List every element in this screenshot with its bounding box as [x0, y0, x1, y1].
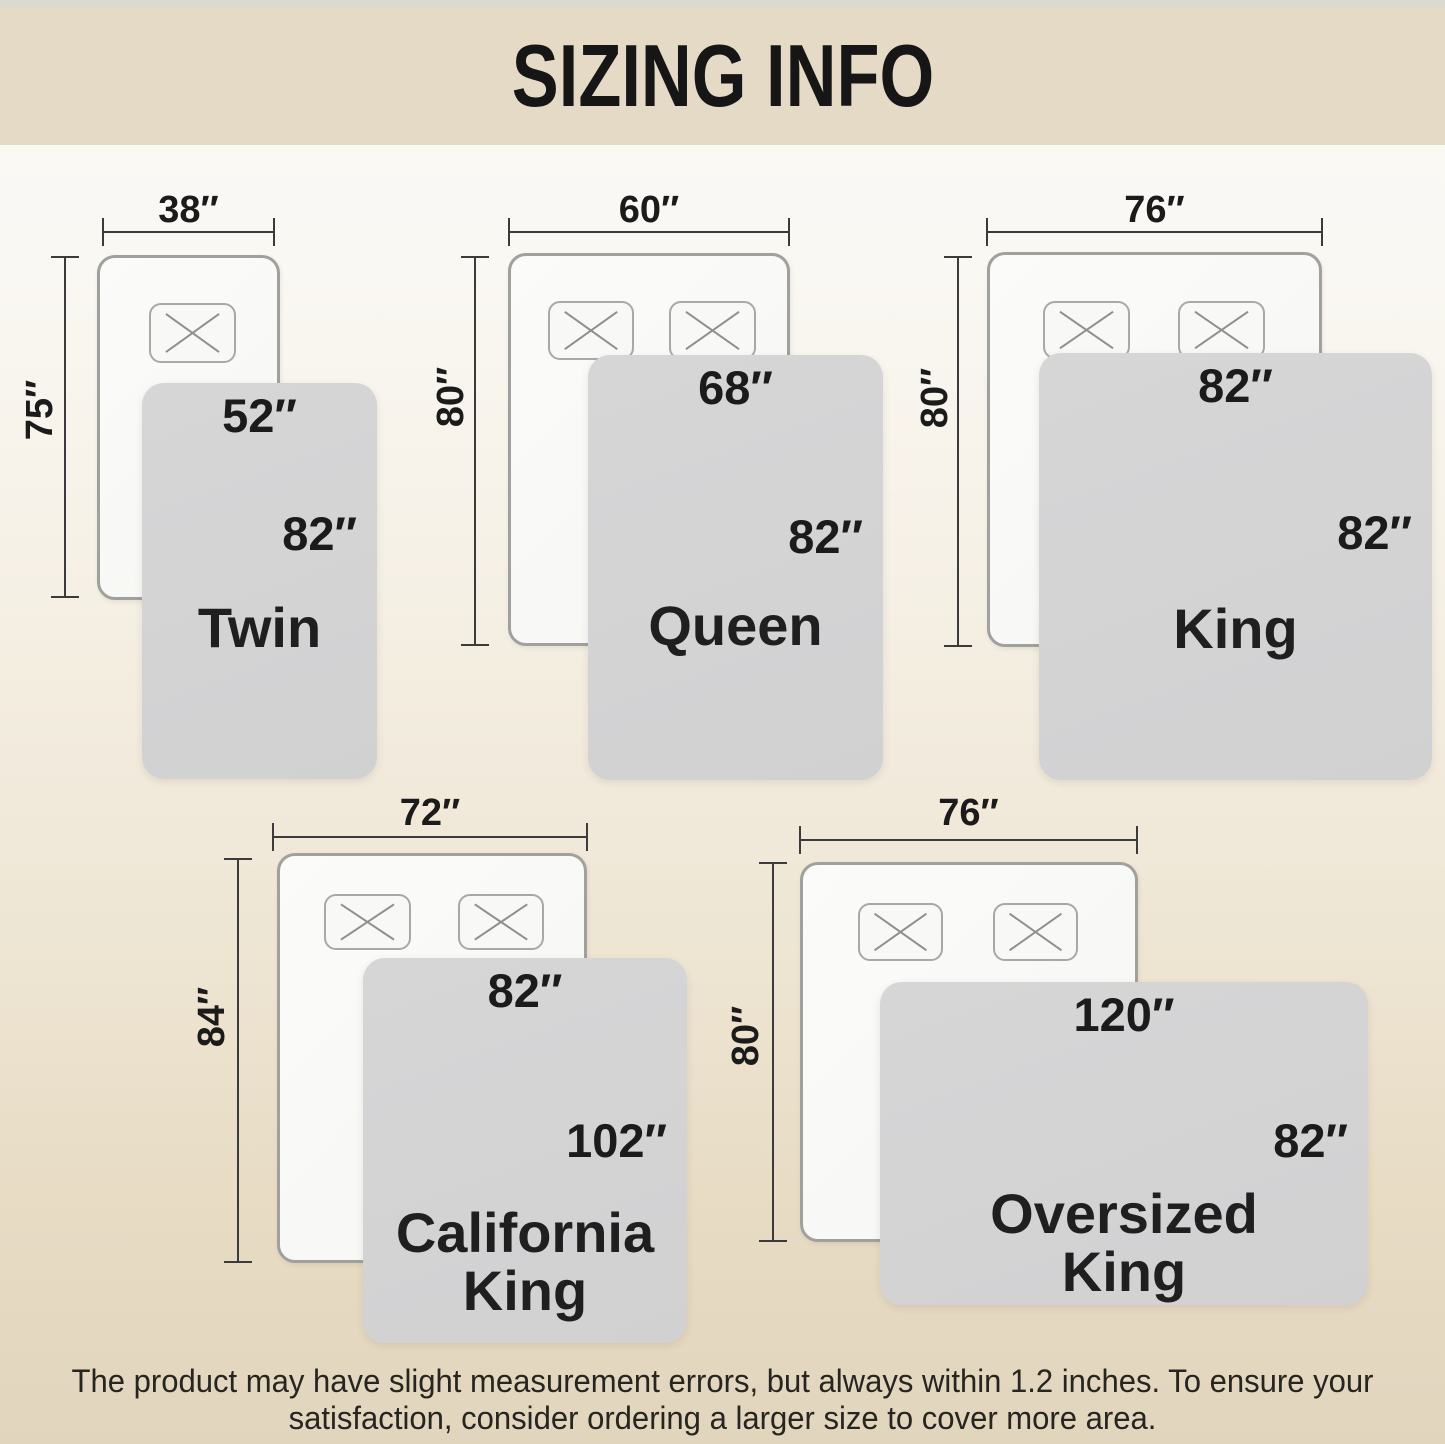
blanket-length-label: 82″	[1273, 1113, 1348, 1168]
size-name: Queen	[588, 597, 883, 655]
bed-width-dimension-line	[799, 839, 1138, 841]
blanket-length-label: 82″	[282, 506, 357, 561]
bed-length-dimension-line	[772, 862, 774, 1242]
pillow-x-icon	[1045, 303, 1128, 357]
blanket: 82″ 82″ King	[1039, 353, 1432, 780]
blanket-length-label: 82″	[788, 509, 863, 564]
blanket: 68″ 82″ Queen	[588, 355, 883, 780]
blanket: 120″ 82″ OversizedKing	[880, 982, 1368, 1305]
page-title: SIZING INFO	[511, 25, 933, 127]
pillow-x-icon	[326, 896, 409, 948]
bed-width-label: 72″	[272, 792, 588, 835]
pillow-x-icon	[1180, 303, 1263, 357]
pillow-x-icon	[995, 905, 1076, 959]
pillow-x-icon	[460, 896, 542, 948]
blanket: 52″ 82″ Twin	[142, 383, 377, 779]
bed-length-dimension-line	[957, 256, 959, 647]
top-strip	[0, 0, 1445, 7]
size-name: OversizedKing	[880, 1185, 1368, 1301]
blanket-width-label: 68″	[588, 360, 883, 415]
pillow	[149, 303, 236, 363]
pillow-x-icon	[671, 303, 754, 358]
bed-length-label: 84″	[190, 957, 234, 1077]
bed-length-label: 80″	[913, 338, 957, 458]
pillow	[458, 894, 544, 950]
bed-length-label: 75″	[18, 350, 62, 470]
bed-length-label: 80″	[724, 976, 768, 1096]
pillow	[324, 894, 411, 950]
bed-length-dimension-line	[237, 858, 239, 1263]
pillow-x-icon	[550, 303, 632, 358]
pillow	[993, 903, 1078, 961]
blanket-width-label: 82″	[1039, 358, 1432, 413]
bed-length-label: 80″	[429, 337, 473, 457]
disclaimer-line-2: satisfaction, consider ordering a larger…	[22, 1400, 1424, 1437]
size-name: King	[1039, 600, 1432, 658]
bed-width-dimension-line	[508, 231, 790, 233]
bed-width-label: 76″	[799, 792, 1138, 835]
disclaimer-text: The product may have slight measurement …	[22, 1363, 1424, 1437]
header-band: SIZING INFO	[0, 7, 1445, 145]
pillow	[548, 301, 634, 360]
bed-width-dimension-line	[272, 836, 588, 838]
bed-length-dimension-line	[474, 256, 476, 646]
size-name: CaliforniaKing	[363, 1204, 687, 1320]
blanket-length-label: 82″	[1337, 505, 1412, 560]
pillow-x-icon	[151, 305, 234, 361]
blanket-width-label: 82″	[363, 963, 687, 1018]
sizing-infographic: SIZING INFO 38″ 75″ 52″ 82″ Twin 60″ 80″	[0, 0, 1445, 1444]
bed-width-label: 76″	[986, 189, 1323, 232]
bed-width-dimension-line	[102, 231, 275, 233]
bed-width-dimension-line	[986, 231, 1323, 233]
bed-width-label: 60″	[508, 189, 790, 232]
size-name: Twin	[142, 599, 377, 657]
disclaimer-line-1: The product may have slight measurement …	[22, 1363, 1424, 1400]
blanket-length-label: 102″	[566, 1113, 667, 1168]
blanket: 82″ 102″ CaliforniaKing	[363, 958, 687, 1343]
bed-length-dimension-line	[64, 256, 66, 598]
bed-width-label: 38″	[102, 189, 275, 232]
pillow-x-icon	[860, 905, 941, 959]
blanket-width-label: 120″	[880, 987, 1368, 1042]
pillow	[1178, 301, 1265, 359]
blanket-width-label: 52″	[142, 388, 377, 443]
pillow	[858, 903, 943, 961]
pillow	[1043, 301, 1130, 359]
pillow	[669, 301, 756, 360]
